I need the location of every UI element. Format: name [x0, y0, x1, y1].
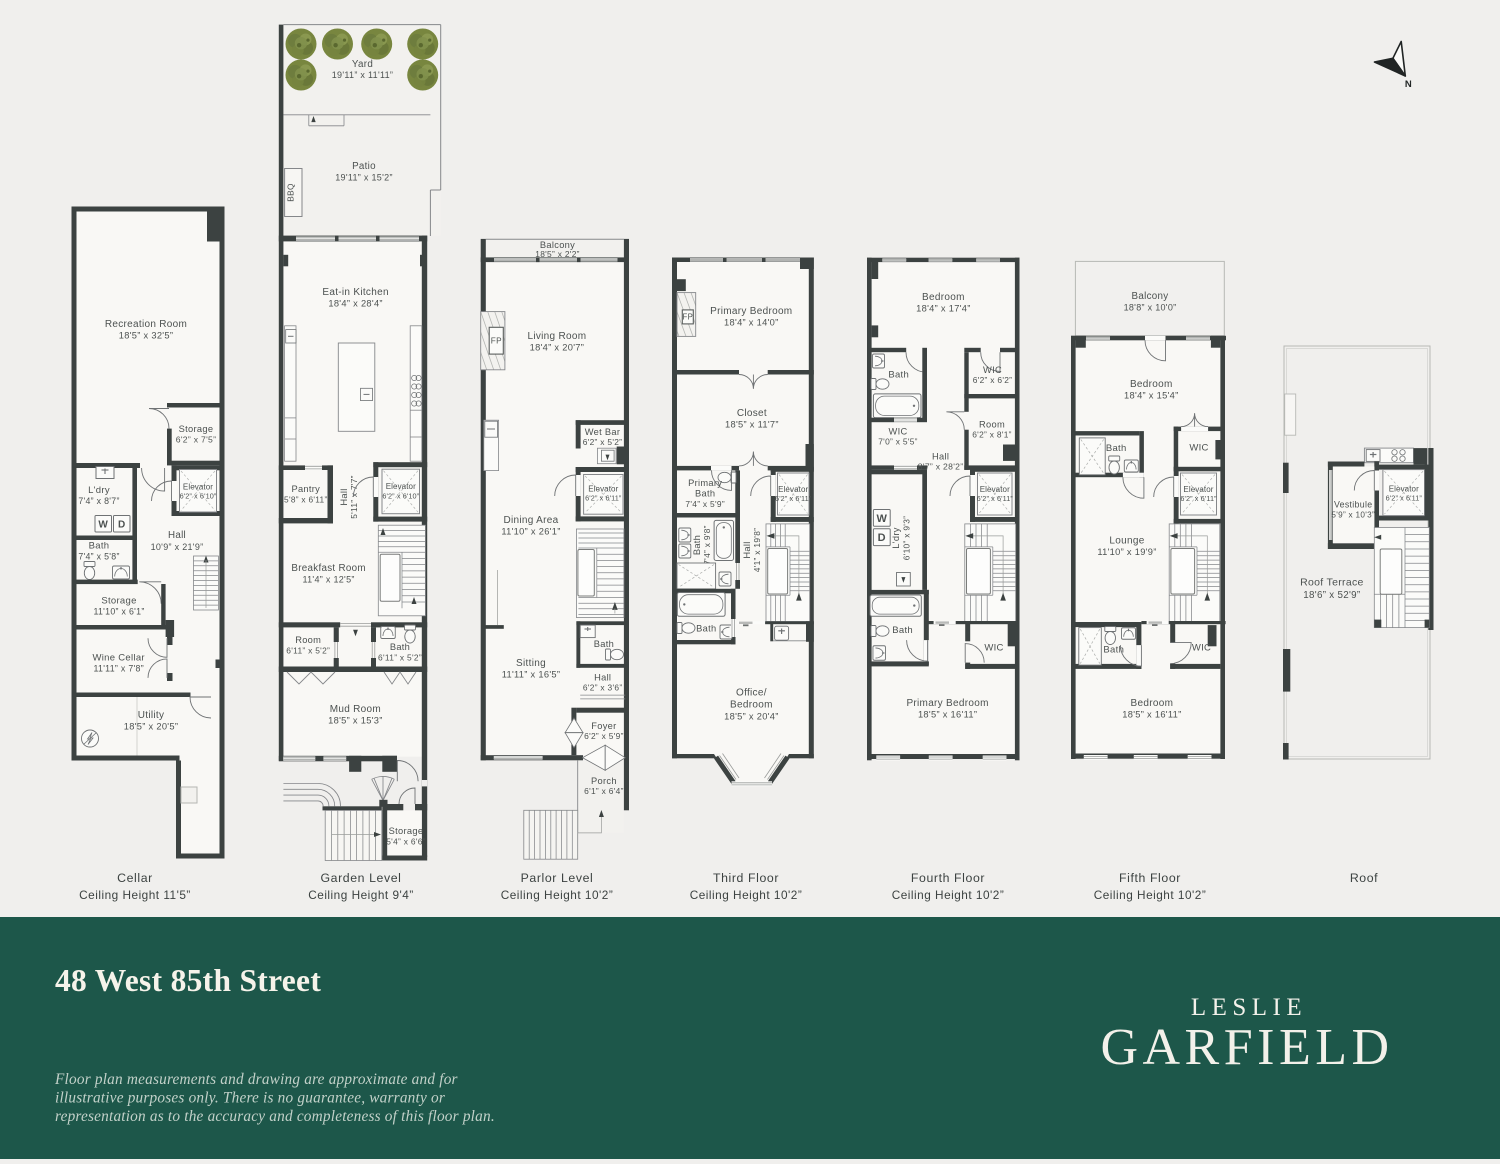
- svg-text:Storage: Storage: [179, 424, 214, 434]
- svg-text:L'dry: L'dry: [891, 527, 901, 548]
- svg-text:Primary: Primary: [688, 478, 722, 488]
- svg-text:Elevator: Elevator: [778, 485, 808, 494]
- svg-text:6'2” x 6'2”: 6'2” x 6'2”: [973, 375, 1013, 385]
- svg-text:11'10” x 6'1”: 11'10” x 6'1”: [93, 607, 144, 617]
- svg-text:Ceiling Height 10'2”: Ceiling Height 10'2”: [892, 888, 1005, 902]
- svg-text:18'5” x 11'7”: 18'5” x 11'7”: [725, 420, 779, 430]
- svg-text:6'2” x 6'11”: 6'2” x 6'11”: [1180, 494, 1217, 503]
- svg-text:6'2” x 5'2”: 6'2” x 5'2”: [583, 437, 623, 447]
- svg-text:Bath: Bath: [695, 489, 715, 499]
- svg-text:6'2” x 6'10”: 6'2” x 6'10”: [382, 492, 419, 501]
- svg-text:Hall: Hall: [594, 673, 611, 683]
- svg-text:Fourth Floor: Fourth Floor: [911, 871, 985, 885]
- svg-text:Lounge: Lounge: [1109, 536, 1144, 547]
- svg-text:Eat-in Kitchen: Eat-in Kitchen: [322, 287, 388, 298]
- svg-text:Primary Bedroom: Primary Bedroom: [906, 698, 988, 709]
- svg-text:Bath: Bath: [89, 541, 110, 552]
- svg-text:7'0” x 5'5”: 7'0” x 5'5”: [878, 437, 918, 447]
- svg-text:Ceiling Height 10'2”: Ceiling Height 10'2”: [1094, 888, 1207, 902]
- svg-text:Living Room: Living Room: [527, 331, 586, 342]
- svg-text:Hall: Hall: [339, 488, 349, 505]
- svg-text:6'2” x 6'11”: 6'2” x 6'11”: [1386, 494, 1423, 503]
- svg-text:L'dry: L'dry: [88, 485, 110, 496]
- svg-text:18'4” x 15'4”: 18'4” x 15'4”: [1124, 391, 1178, 401]
- svg-text:6'2” x 3'6”: 6'2” x 3'6”: [583, 683, 623, 693]
- svg-text:6'2” x 7'5”: 6'2” x 7'5”: [176, 435, 217, 445]
- svg-text:Elevator: Elevator: [588, 485, 618, 494]
- svg-text:6'2” x 6'10”: 6'2” x 6'10”: [180, 492, 217, 501]
- svg-text:Pantry: Pantry: [291, 484, 320, 494]
- svg-text:6'1” x 6'4”: 6'1” x 6'4”: [584, 786, 624, 796]
- svg-text:FP: FP: [683, 313, 694, 322]
- svg-text:Bath: Bath: [692, 535, 702, 555]
- svg-text:Ceiling Height 10'2”: Ceiling Height 10'2”: [690, 888, 803, 902]
- svg-text:Yard: Yard: [352, 59, 373, 70]
- svg-text:18'5” x 15'3”: 18'5” x 15'3”: [328, 716, 382, 726]
- svg-text:18'5” x 16'11”: 18'5” x 16'11”: [1122, 710, 1181, 720]
- svg-text:11'10” x 26'1”: 11'10” x 26'1”: [501, 527, 560, 537]
- svg-text:6'2” x 5'9”: 6'2” x 5'9”: [584, 731, 624, 741]
- svg-text:Elevator: Elevator: [386, 482, 416, 491]
- svg-text:Wet Bar: Wet Bar: [585, 427, 621, 437]
- svg-text:18'5” x 32'5”: 18'5” x 32'5”: [119, 331, 173, 341]
- svg-text:18'8” x 10'0”: 18'8” x 10'0”: [1124, 303, 1177, 313]
- svg-text:BBQ: BBQ: [286, 183, 296, 202]
- svg-text:11'11” x 16'5”: 11'11” x 16'5”: [502, 670, 561, 680]
- svg-text:18'4” x 17'4”: 18'4” x 17'4”: [916, 304, 970, 314]
- svg-text:5'9” x 10'3”: 5'9” x 10'3”: [1331, 511, 1375, 520]
- svg-text:Elevator: Elevator: [1183, 485, 1213, 494]
- svg-text:5'11” x 7'7”: 5'11” x 7'7”: [349, 475, 359, 519]
- svg-text:Bath: Bath: [888, 370, 909, 381]
- svg-text:Bath: Bath: [1106, 443, 1127, 454]
- svg-text:Room: Room: [979, 420, 1005, 430]
- svg-text:11'4” x 12'5”: 11'4” x 12'5”: [302, 575, 354, 585]
- svg-text:illustrative purposes only. Th: illustrative purposes only. There is no …: [55, 1090, 445, 1107]
- svg-text:7'4” x 8'7”: 7'4” x 8'7”: [78, 496, 119, 506]
- svg-text:Storage: Storage: [101, 596, 136, 607]
- svg-text:Elevator: Elevator: [183, 483, 213, 492]
- svg-text:Patio: Patio: [352, 161, 376, 172]
- svg-text:48 West 85th Street: 48 West 85th Street: [55, 963, 321, 998]
- svg-text:Sitting: Sitting: [516, 658, 546, 669]
- svg-text:Wine Cellar: Wine Cellar: [92, 653, 144, 664]
- svg-text:6'2” x 6'11”: 6'2” x 6'11”: [585, 494, 622, 503]
- svg-text:6'2” x 6'11”: 6'2” x 6'11”: [775, 494, 812, 503]
- svg-text:D: D: [118, 519, 126, 530]
- svg-text:Balcony: Balcony: [1132, 291, 1169, 302]
- svg-text:18'5” x 20'4”: 18'5” x 20'4”: [724, 712, 778, 722]
- svg-text:Ceiling Height 10'2”: Ceiling Height 10'2”: [501, 888, 614, 902]
- svg-text:7'4” x 9'8”: 7'4” x 9'8”: [702, 525, 712, 565]
- svg-text:representation as to the accur: representation as to the accuracy and co…: [55, 1108, 495, 1125]
- svg-text:GARFIELD: GARFIELD: [1100, 1019, 1393, 1076]
- svg-text:N: N: [1405, 79, 1412, 90]
- svg-text:LESLIE: LESLIE: [1191, 994, 1307, 1021]
- svg-text:Recreation Room: Recreation Room: [105, 319, 187, 330]
- svg-text:WIC: WIC: [983, 365, 1002, 375]
- svg-text:W: W: [98, 519, 108, 530]
- svg-text:Breakfast Room: Breakfast Room: [291, 563, 365, 574]
- svg-text:Bath: Bath: [696, 624, 716, 634]
- svg-text:7'4” x 5'8”: 7'4” x 5'8”: [78, 552, 119, 562]
- svg-text:Closet: Closet: [737, 408, 767, 419]
- svg-text:Bath: Bath: [390, 642, 410, 652]
- svg-text:Primary Bedroom: Primary Bedroom: [710, 306, 792, 317]
- svg-text:18'5” x 16'11”: 18'5” x 16'11”: [918, 710, 977, 720]
- svg-text:WIC: WIC: [984, 643, 1003, 654]
- svg-text:18'4” x 28'4”: 18'4” x 28'4”: [328, 299, 382, 309]
- svg-text:Hall: Hall: [932, 452, 949, 462]
- svg-text:Hall: Hall: [742, 541, 752, 558]
- svg-text:D: D: [878, 532, 886, 544]
- svg-text:7'4” x 5'9”: 7'4” x 5'9”: [685, 499, 725, 509]
- svg-text:6'2” x 8'1”: 6'2” x 8'1”: [972, 430, 1012, 440]
- svg-text:18'4” x 14'0”: 18'4” x 14'0”: [724, 318, 778, 328]
- svg-text:Bath: Bath: [594, 639, 614, 649]
- svg-text:WIC: WIC: [1189, 443, 1208, 454]
- svg-text:6'2” x 6'11”: 6'2” x 6'11”: [977, 494, 1014, 503]
- svg-text:18'5” x 20'5”: 18'5” x 20'5”: [124, 722, 178, 732]
- svg-text:10'9” x 21'9”: 10'9” x 21'9”: [151, 542, 204, 552]
- svg-text:6'11” x 5'2”: 6'11” x 5'2”: [286, 646, 330, 656]
- svg-text:W: W: [876, 513, 887, 525]
- svg-text:Fifth Floor: Fifth Floor: [1119, 871, 1181, 885]
- svg-text:18'4” x 20'7”: 18'4” x 20'7”: [530, 343, 584, 353]
- svg-text:Mud Room: Mud Room: [330, 704, 381, 715]
- svg-text:Parlor Level: Parlor Level: [521, 871, 594, 885]
- svg-text:18'6” x 52'9”: 18'6” x 52'9”: [1303, 590, 1360, 601]
- svg-text:Elevator: Elevator: [980, 485, 1010, 494]
- svg-text:Ceiling Height 11'5”: Ceiling Height 11'5”: [79, 888, 191, 902]
- svg-text:WIC: WIC: [889, 427, 908, 437]
- svg-text:19'11” x 11'11”: 19'11” x 11'11”: [332, 70, 393, 80]
- svg-text:Floor plan measurements and dr: Floor plan measurements and drawing are …: [54, 1071, 458, 1088]
- svg-text:Elevator: Elevator: [1389, 485, 1419, 494]
- svg-text:Hall: Hall: [168, 530, 186, 541]
- svg-text:Bedroom: Bedroom: [730, 700, 773, 711]
- svg-text:Porch: Porch: [591, 776, 617, 786]
- svg-text:Third Floor: Third Floor: [713, 871, 779, 885]
- svg-text:Utility: Utility: [138, 710, 165, 721]
- svg-text:Dining Area: Dining Area: [504, 515, 559, 526]
- svg-text:Vestibule: Vestibule: [1334, 500, 1372, 510]
- svg-text:4'1” x 19'8”: 4'1” x 19'8”: [752, 528, 762, 573]
- svg-text:Ceiling Height 9'4”: Ceiling Height 9'4”: [308, 888, 414, 902]
- svg-text:Roof: Roof: [1350, 871, 1378, 885]
- svg-text:5'8” x 6'11”: 5'8” x 6'11”: [284, 495, 328, 505]
- svg-text:Office/: Office/: [736, 688, 767, 699]
- svg-text:WIC: WIC: [1192, 643, 1211, 654]
- svg-text:Bedroom: Bedroom: [922, 292, 965, 303]
- svg-text:Bedroom: Bedroom: [1131, 698, 1174, 709]
- svg-text:Garden Level: Garden Level: [320, 871, 401, 885]
- svg-text:11'10” x 19'9”: 11'10” x 19'9”: [1097, 547, 1156, 557]
- svg-text:Room: Room: [295, 635, 321, 645]
- svg-text:5'4” x 6'6”: 5'4” x 6'6”: [386, 837, 426, 847]
- svg-text:Bath: Bath: [892, 625, 913, 636]
- svg-text:6'11” x 5'2”: 6'11” x 5'2”: [378, 653, 422, 663]
- svg-text:Foyer: Foyer: [591, 721, 616, 731]
- svg-text:Cellar: Cellar: [117, 871, 153, 885]
- svg-text:Bedroom: Bedroom: [1130, 379, 1173, 390]
- svg-text:6'10” x 9'3”: 6'10” x 9'3”: [902, 516, 912, 561]
- svg-text:11'11” x 7'8”: 11'11” x 7'8”: [93, 664, 143, 674]
- svg-text:FP: FP: [491, 337, 502, 346]
- svg-text:Roof Terrace: Roof Terrace: [1300, 577, 1364, 589]
- svg-text:Storage: Storage: [389, 826, 424, 836]
- svg-text:19'11” x 15'2”: 19'11” x 15'2”: [335, 173, 393, 183]
